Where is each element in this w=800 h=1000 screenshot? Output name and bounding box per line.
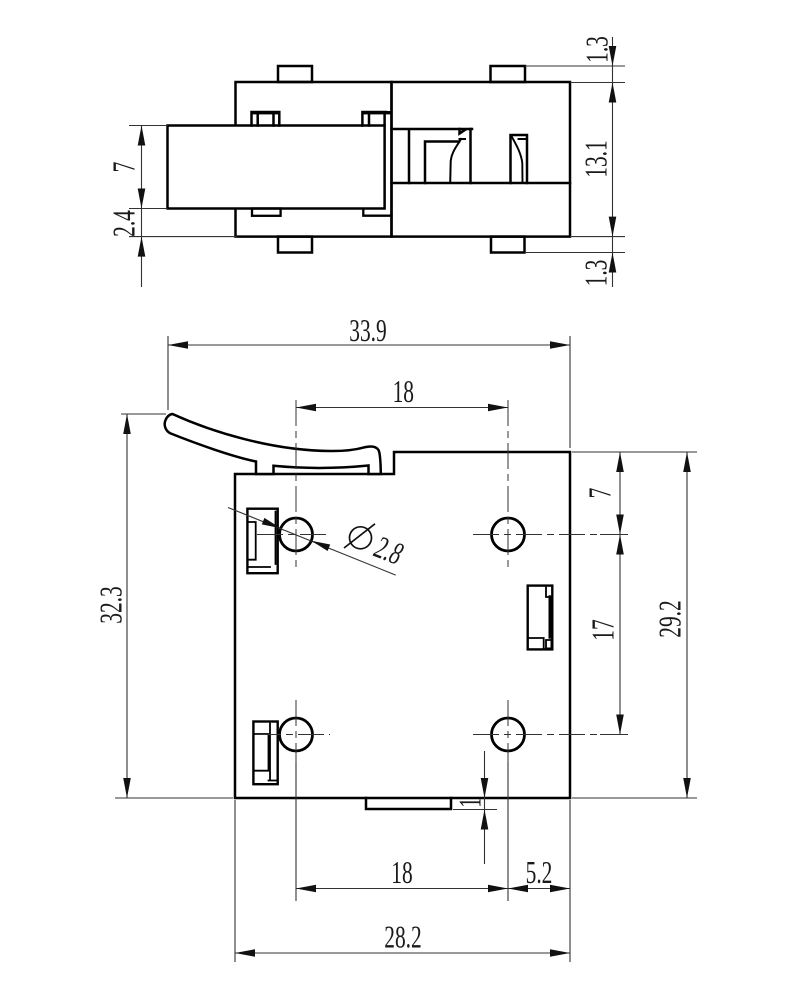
svg-text:29.2: 29.2 xyxy=(652,600,687,638)
svg-text:2.4: 2.4 xyxy=(106,210,141,237)
svg-text:33.9: 33.9 xyxy=(349,313,387,348)
svg-text:1.3: 1.3 xyxy=(579,36,614,63)
svg-text:7: 7 xyxy=(582,488,617,499)
svg-text:18: 18 xyxy=(393,374,414,409)
svg-text:1.3: 1.3 xyxy=(578,260,613,287)
svg-text:13.1: 13.1 xyxy=(578,140,613,178)
svg-text:1: 1 xyxy=(452,797,487,808)
svg-text:17: 17 xyxy=(585,619,620,640)
svg-text:7: 7 xyxy=(106,162,141,173)
svg-text:28.2: 28.2 xyxy=(384,919,422,954)
svg-text:32.3: 32.3 xyxy=(93,586,128,624)
svg-text:5.2: 5.2 xyxy=(526,855,553,890)
svg-text:18: 18 xyxy=(391,855,412,890)
